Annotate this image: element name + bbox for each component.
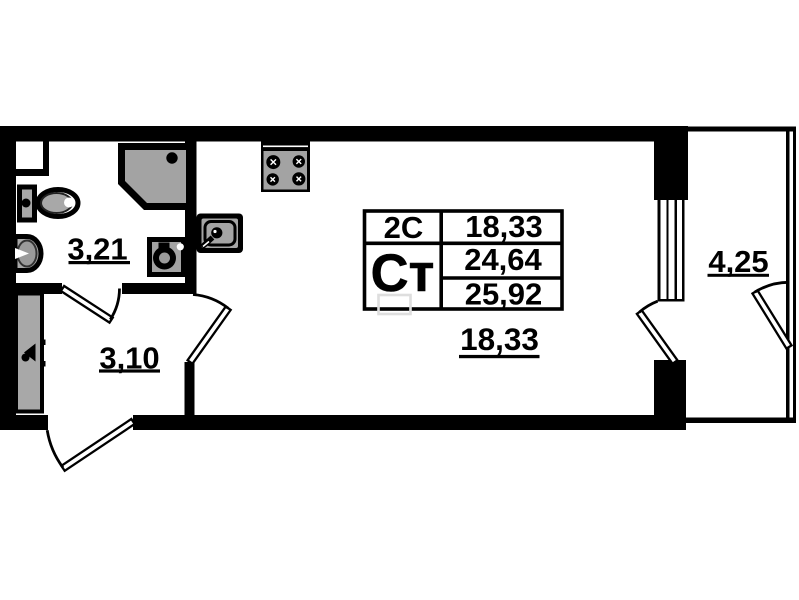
svg-text:2C: 2C [384, 210, 424, 245]
svg-text:4,25: 4,25 [708, 244, 768, 279]
svg-text:18,33: 18,33 [460, 321, 539, 357]
svg-text:Ст: Ст [371, 244, 435, 303]
svg-text:25,92: 25,92 [465, 277, 543, 312]
svg-text:24,64: 24,64 [464, 242, 542, 277]
svg-text:18,33: 18,33 [465, 209, 543, 244]
